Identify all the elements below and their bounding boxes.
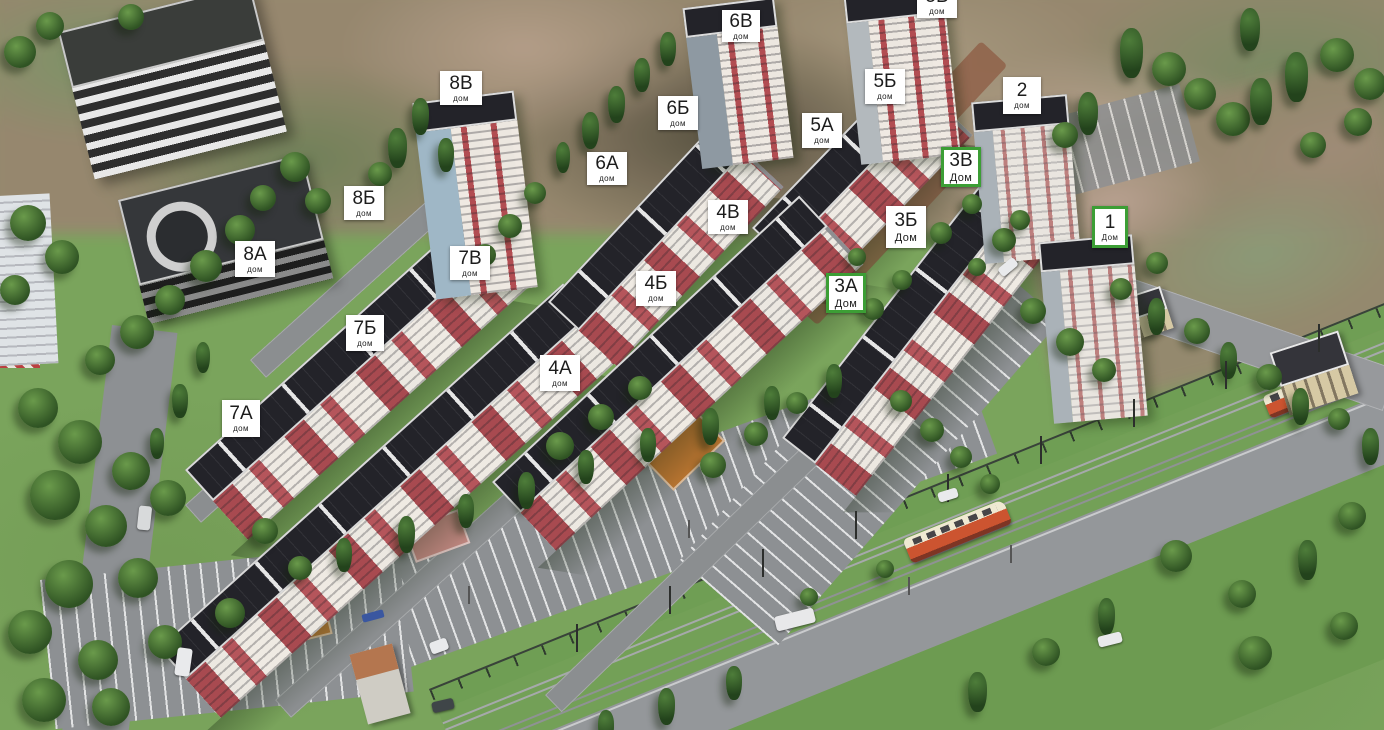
label-text: 6А bbox=[595, 154, 618, 173]
poplar-tree bbox=[578, 450, 594, 484]
tree bbox=[628, 376, 652, 400]
catenary-pole bbox=[1133, 399, 1135, 427]
poplar-tree bbox=[398, 516, 415, 553]
tree bbox=[78, 640, 118, 680]
building-label-4b[interactable]: 4Бдом bbox=[636, 271, 676, 306]
label-text: 7В bbox=[458, 249, 481, 268]
masterplan-render: 5Вдом 6Вдом 8Вдом 5Бдом 2дом 6Бдом 5Адом… bbox=[0, 0, 1384, 730]
building-label-6b[interactable]: 6Бдом bbox=[658, 96, 698, 130]
tree bbox=[1344, 108, 1372, 136]
catenary-pole bbox=[1225, 361, 1227, 389]
tree bbox=[8, 610, 52, 654]
tree bbox=[85, 345, 115, 375]
poplar-tree bbox=[1078, 92, 1098, 135]
poplar-tree bbox=[608, 86, 625, 123]
tree bbox=[1256, 364, 1282, 390]
poplar-tree bbox=[518, 472, 535, 509]
tree bbox=[950, 446, 972, 468]
label-subtext: дом bbox=[1014, 102, 1030, 110]
building-label-8b[interactable]: 8Бдом bbox=[344, 186, 384, 220]
label-text: 7Б bbox=[353, 319, 376, 338]
poplar-tree bbox=[726, 666, 742, 700]
label-subtext: Дом bbox=[950, 173, 972, 184]
poplar-tree bbox=[1240, 8, 1260, 51]
catenary-pole bbox=[1040, 436, 1042, 464]
poplar-tree bbox=[1250, 78, 1272, 125]
tree bbox=[368, 162, 392, 186]
poplar-tree bbox=[1362, 428, 1379, 465]
poplar-tree bbox=[660, 32, 676, 66]
tree bbox=[1320, 38, 1354, 72]
tree bbox=[1160, 540, 1192, 572]
tree bbox=[1020, 298, 1046, 324]
tree bbox=[1228, 580, 1256, 608]
tree bbox=[30, 470, 80, 520]
building-label-1[interactable]: 1Дом bbox=[1092, 206, 1128, 248]
poplar-tree bbox=[336, 538, 352, 572]
building-label-4a[interactable]: 4Адом bbox=[540, 355, 580, 391]
tree bbox=[1330, 612, 1358, 640]
tree bbox=[1032, 638, 1060, 666]
catenary-pole bbox=[1318, 324, 1320, 352]
street-lamp bbox=[1010, 545, 1012, 563]
tree bbox=[1300, 132, 1326, 158]
label-subtext: дом bbox=[648, 295, 664, 303]
building-label-6v[interactable]: 6Вдом bbox=[722, 10, 760, 42]
building-label-7a[interactable]: 7Адом bbox=[222, 400, 260, 437]
tree bbox=[85, 505, 127, 547]
building-label-8v[interactable]: 8Вдом bbox=[440, 71, 482, 105]
street-lamp bbox=[468, 586, 470, 604]
poplar-tree bbox=[764, 386, 780, 420]
tree bbox=[1146, 252, 1168, 274]
label-text: 5А bbox=[810, 116, 833, 135]
poplar-tree bbox=[412, 98, 429, 135]
poplar-tree bbox=[172, 384, 188, 418]
tree bbox=[36, 12, 64, 40]
tree bbox=[252, 518, 278, 544]
tree bbox=[1092, 358, 1116, 382]
label-text: 7А bbox=[229, 404, 252, 423]
tree bbox=[1338, 502, 1366, 530]
label-subtext: дом bbox=[670, 120, 686, 128]
tree bbox=[1052, 122, 1078, 148]
tree bbox=[1354, 68, 1384, 100]
building-label-3a[interactable]: 3АДом bbox=[826, 273, 866, 313]
poplar-tree bbox=[826, 364, 842, 398]
tree bbox=[18, 388, 58, 428]
tree bbox=[280, 152, 310, 182]
label-subtext: дом bbox=[552, 380, 568, 388]
tree bbox=[498, 214, 522, 238]
facade bbox=[686, 27, 793, 169]
tree bbox=[1216, 102, 1250, 136]
building-label-7b[interactable]: 7Бдом bbox=[346, 315, 384, 351]
poplar-tree bbox=[458, 494, 474, 528]
building-label-8a[interactable]: 8Адом bbox=[235, 241, 275, 277]
label-text: 4А bbox=[548, 359, 571, 378]
poplar-tree bbox=[640, 428, 656, 462]
poplar-tree bbox=[1220, 342, 1237, 379]
poplar-tree bbox=[1285, 52, 1308, 102]
tree bbox=[786, 392, 808, 414]
label-text: 1 bbox=[1105, 213, 1116, 232]
label-subtext: дом bbox=[814, 137, 830, 145]
label-text: 4В bbox=[716, 203, 739, 222]
building-label-5v[interactable]: 5Вдом bbox=[917, 0, 957, 18]
label-text: 8А bbox=[243, 245, 266, 264]
building-label-5a[interactable]: 5Адом bbox=[802, 113, 842, 148]
tree bbox=[10, 205, 46, 241]
tree bbox=[120, 315, 154, 349]
building-label-3b[interactable]: 3БДом bbox=[886, 206, 926, 248]
label-subtext: Дом bbox=[1102, 234, 1119, 242]
label-text: 4Б bbox=[644, 274, 667, 293]
tree bbox=[980, 474, 1000, 494]
tree bbox=[588, 404, 614, 430]
building-2-tower[interactable] bbox=[971, 94, 1081, 264]
poplar-tree bbox=[1292, 388, 1309, 425]
label-text: 8Б bbox=[352, 189, 375, 208]
label-text: 6Б bbox=[666, 99, 689, 118]
poplar-tree bbox=[598, 710, 614, 730]
tree bbox=[524, 182, 546, 204]
building-label-4v[interactable]: 4Вдом bbox=[708, 200, 748, 234]
poplar-tree bbox=[702, 408, 719, 445]
label-subtext: Дом bbox=[895, 233, 917, 244]
tree bbox=[1110, 278, 1132, 300]
tree bbox=[1328, 408, 1350, 430]
tree bbox=[45, 560, 93, 608]
catenary-pole bbox=[576, 624, 578, 652]
tree bbox=[962, 194, 982, 214]
poplar-tree bbox=[1098, 598, 1115, 635]
label-subtext: дом bbox=[453, 95, 469, 103]
building-label-5b[interactable]: 5Бдом bbox=[865, 69, 905, 104]
street-lamp bbox=[908, 577, 910, 595]
car bbox=[137, 505, 152, 530]
label-text: 3В bbox=[949, 151, 972, 170]
label-subtext: Дом bbox=[835, 299, 857, 310]
tree bbox=[992, 228, 1016, 252]
poplar-tree bbox=[438, 138, 454, 172]
label-subtext: дом bbox=[733, 33, 749, 41]
tree bbox=[155, 285, 185, 315]
tree bbox=[744, 422, 768, 446]
catenary-pole bbox=[855, 511, 857, 539]
label-subtext: дом bbox=[356, 210, 372, 218]
tree bbox=[45, 240, 79, 274]
tree bbox=[920, 418, 944, 442]
tree bbox=[800, 588, 818, 606]
building-1-tower[interactable] bbox=[1038, 234, 1148, 424]
tree bbox=[890, 390, 912, 412]
tree bbox=[150, 480, 186, 516]
building-label-2[interactable]: 2дом bbox=[1003, 77, 1041, 114]
tree bbox=[930, 222, 952, 244]
tree bbox=[250, 185, 276, 211]
tree bbox=[1184, 78, 1216, 110]
tree bbox=[305, 188, 331, 214]
label-text: 5Б bbox=[873, 72, 896, 91]
street-lamp bbox=[688, 520, 690, 538]
poplar-tree bbox=[582, 112, 599, 149]
poplar-tree bbox=[1148, 298, 1165, 335]
tree bbox=[546, 432, 574, 460]
label-subtext: дом bbox=[462, 270, 478, 278]
tree bbox=[968, 258, 986, 276]
tree bbox=[1238, 636, 1272, 670]
label-subtext: дом bbox=[877, 93, 893, 101]
tree bbox=[892, 270, 912, 290]
tree bbox=[4, 36, 36, 68]
tree bbox=[700, 452, 726, 478]
label-subtext: дом bbox=[247, 266, 263, 274]
label-subtext: дом bbox=[233, 425, 249, 433]
catenary-pole bbox=[669, 586, 671, 614]
tree bbox=[118, 4, 144, 30]
building-label-6a[interactable]: 6Адом bbox=[587, 152, 627, 185]
poplar-tree bbox=[658, 688, 675, 725]
tree bbox=[876, 560, 894, 578]
label-text: 3Б bbox=[894, 211, 917, 230]
building-label-7v[interactable]: 7Вдом bbox=[450, 246, 490, 280]
tree bbox=[190, 250, 222, 282]
poplar-tree bbox=[388, 128, 407, 168]
label-subtext: дом bbox=[599, 175, 615, 183]
tree bbox=[22, 678, 66, 722]
tree bbox=[288, 556, 312, 580]
poplar-tree bbox=[968, 672, 987, 712]
label-text: 8В bbox=[449, 74, 472, 93]
catenary-pole bbox=[762, 549, 764, 577]
label-text: 6В bbox=[729, 12, 752, 31]
label-text: 3А bbox=[834, 277, 857, 296]
label-text: 5В bbox=[925, 0, 948, 6]
tree bbox=[92, 688, 130, 726]
label-subtext: дом bbox=[929, 8, 945, 16]
poplar-tree bbox=[1120, 28, 1143, 78]
tree bbox=[58, 420, 102, 464]
label-text: 2 bbox=[1017, 81, 1028, 100]
tree bbox=[112, 452, 150, 490]
tree bbox=[215, 598, 245, 628]
tree bbox=[848, 248, 866, 266]
tree bbox=[1152, 52, 1186, 86]
tree bbox=[118, 558, 158, 598]
tree bbox=[0, 275, 30, 305]
label-subtext: дом bbox=[720, 224, 736, 232]
poplar-tree bbox=[634, 58, 650, 92]
poplar-tree bbox=[1298, 540, 1317, 580]
label-subtext: дом bbox=[357, 340, 373, 348]
tree bbox=[1184, 318, 1210, 344]
tree bbox=[1010, 210, 1030, 230]
building-label-3v[interactable]: 3ВДом bbox=[941, 147, 981, 187]
tree bbox=[1056, 328, 1084, 356]
